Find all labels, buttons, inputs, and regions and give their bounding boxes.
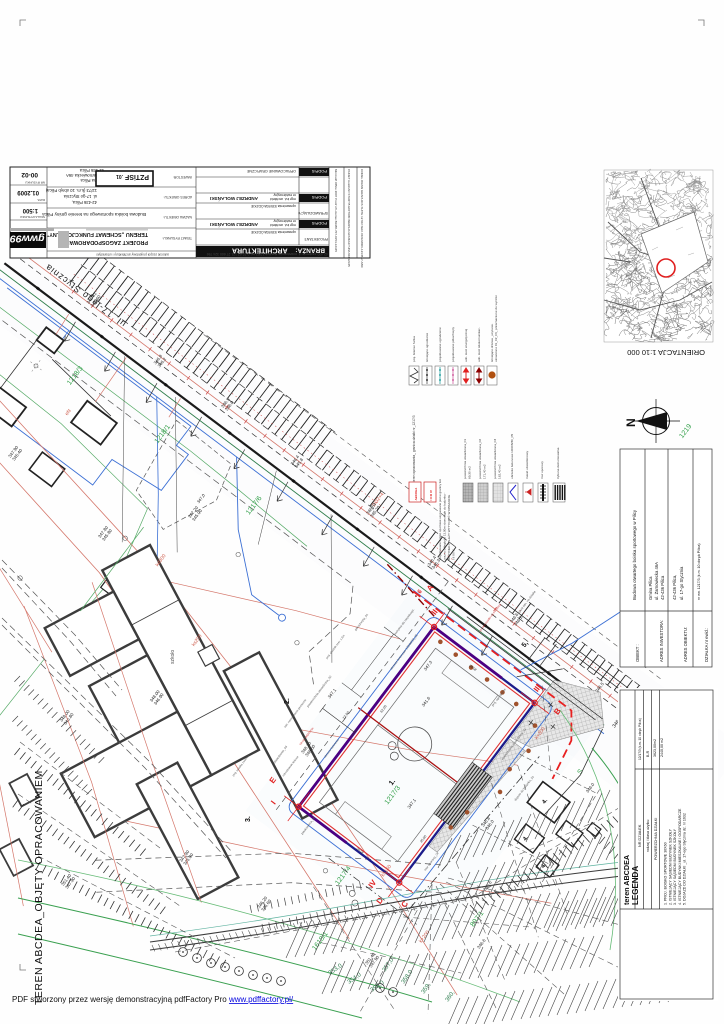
svg-text:PAKIET AutoCAD START/5 EDITION: PAKIET AutoCAD START/5 EDITION WERSJA ED…: [347, 169, 351, 267]
svg-text:PODPIS: PODPIS: [312, 195, 327, 200]
svg-text:powierzchnia utwardzona_03: powierzchnia utwardzona_03: [493, 439, 497, 479]
svg-text:01.2009: 01.2009: [17, 189, 39, 195]
svg-text:162,40 m2: 162,40 m2: [498, 464, 502, 479]
svg-text:powierzchnia utwardzona_01: powierzchnia utwardzona_01: [463, 439, 467, 479]
svg-text:PODPIS: PODPIS: [312, 221, 327, 226]
svg-text:1:500: 1:500: [22, 207, 38, 213]
svg-text:powierzchnia utwardzona_02: powierzchnia utwardzona_02: [478, 439, 482, 479]
svg-text:DZIAŁKA nr ewid.:: DZIAŁKA nr ewid.:: [704, 628, 709, 662]
svg-text:ABCDEA: ABCDEA: [414, 487, 418, 501]
svg-text:oraz w odległości 13,00m równo: oraz w odległości 13,00m równolegle do b…: [443, 493, 447, 560]
svg-text:LEGENDA: LEGENDA: [631, 866, 640, 905]
svg-text:42-400 zawiercie ul. powstań: 42-400 zawiercie ul. powstańców śląskich…: [207, 252, 328, 256]
svg-text:00-02: 00-02: [21, 171, 38, 178]
svg-text:maszt oświetleniowy: maszt oświetleniowy: [525, 450, 529, 479]
svg-text:szkoło: szkoło: [170, 650, 176, 664]
svg-text:odn. sieci telekomunikac.: odn. sieci telekomunikac.: [477, 327, 481, 362]
svg-text:2.: 2.: [284, 698, 291, 704]
svg-text:POWIERZCHNIA DZIAŁKI: POWIERZCHNIA DZIAŁKI: [654, 818, 658, 860]
svg-text:42-436 Pilica: 42-436 Pilica: [660, 575, 665, 600]
svg-text:12/17/3 (k.m. 10 obręb Pilica): 12/17/3 (k.m. 10 obręb Pilica): [638, 718, 642, 760]
svg-text:PODPIS: PODPIS: [312, 169, 327, 174]
svg-text:mur oporowy: mur oporowy: [540, 461, 544, 479]
svg-text:PDF stworzony przez wersję dem: PDF stworzony przez wersję demonstracyjn…: [12, 995, 294, 1004]
svg-text:SKALA RYSUNKU: SKALA RYSUNKU: [20, 215, 45, 219]
svg-text:N: N: [624, 418, 638, 427]
svg-text:BUDYNEK NALEŻY WYTYCZYĆ W OBSZ: BUDYNEK NALEŻY WYTYCZYĆ W OBSZARZE: [446, 495, 451, 560]
svg-text:COREL DRAW GRAPHICS SUITE 12 N: COREL DRAW GRAPHICS SUITE 12 NR SER. DR1…: [360, 169, 364, 269]
svg-text:2440,00 m2: 2440,00 m2: [660, 738, 664, 757]
svg-text:PROJEKT ZAGOSPODAROWANIA: PROJEKT ZAGOSPODAROWANIA: [60, 239, 148, 245]
svg-text:projektowane boisko sportowe u: projektowane boisko sportowe usytuowane …: [438, 479, 442, 560]
svg-text:Budowa boiska sportowego na te: Budowa boiska sportowego na terenie gmin…: [42, 212, 146, 217]
svg-text:NR DZIAŁEK: NR DZIAŁEK: [638, 824, 642, 847]
svg-text:ul. 17-go Stycznia: ul. 17-go Stycznia: [679, 566, 684, 600]
svg-text:3.: 3.: [245, 816, 252, 822]
svg-text:5. DOJAZD DO DZIAŁKI _ul. 17-: 5. DOJAZD DO DZIAŁKI _ul. 17-ego Styczni…: [683, 813, 687, 905]
svg-text:PZTiSF .01: PZTiSF .01: [116, 173, 149, 180]
svg-text:teren opracowania_ granica dzi: teren opracowania_ granica działki nr_12…: [412, 415, 416, 482]
svg-text:I II III IV: I II III IV: [429, 490, 433, 500]
svg-text:ul. 17-go Stycznia: ul. 17-go Stycznia: [63, 194, 97, 199]
svg-text:projektowane ogrodzenie: projektowane ogrodzenie: [438, 327, 442, 362]
svg-text:proj. brama i furtka: proj. brama i furtka: [412, 336, 416, 362]
svg-text:TEMAT RYSUNKU:: TEMAT RYSUNKU:: [162, 236, 192, 240]
svg-text:ul. Żarnowiecka 46A: ul. Żarnowiecka 46A: [654, 562, 659, 600]
svg-text:nr ew. 1217/3 (k.m. 10 obręb P: nr ew. 1217/3 (k.m. 10 obręb Pilica): [697, 543, 701, 600]
svg-text:uprawnienia 535/93/ŁÓDZKIE: uprawnienia 535/93/ŁÓDZKIE: [250, 204, 296, 209]
svg-text:istniejące ogrodzenie: istniejące ogrodzenie: [425, 333, 429, 362]
svg-text:ADRES OBIEKTU:: ADRES OBIEKTU:: [163, 195, 192, 199]
svg-text:uprawnienia 535/93/ŁÓDZKIE: uprawnienia 535/93/ŁÓDZKIE: [250, 230, 296, 235]
svg-text:3623,00m2: 3623,00m2: [653, 739, 657, 757]
svg-text:I II III IV: I II III IV: [452, 550, 456, 560]
svg-text:PROJEKTANT:: PROJEKTANT:: [304, 237, 328, 241]
svg-text:42-436 Pilica,: 42-436 Pilica,: [672, 575, 677, 600]
svg-text:DATA: DATA: [37, 198, 45, 202]
svg-text:ADRES OBIEKTU:: ADRES OBIEKTU:: [683, 627, 688, 662]
svg-text:NAZWA OBIEKTU:: NAZWA OBIEKTU:: [163, 215, 192, 219]
svg-text:ADRES INWESTORA:: ADRES INWESTORA:: [659, 620, 664, 662]
svg-text:TEREN ABCDEA_OBJĘTY OPRACOWANI: TEREN ABCDEA_OBJĘTY OPRACOWANIEM: [33, 770, 45, 1005]
svg-text:nr ewidencyjny: nr ewidencyjny: [273, 219, 296, 223]
svg-text:Gmina Pilica: Gmina Pilica: [648, 576, 653, 600]
svg-text:3. ISTNIEJĄCY SĄSIEDNI BUDYNE: 3. ISTNIEJĄCY SĄSIEDNI BUDYNEK SZKOŁY: [673, 828, 677, 905]
svg-text:ANDRZEJ WOLAŃSKI: ANDRZEJ WOLAŃSKI: [210, 222, 258, 229]
svg-text:NR RYSUNKU: NR RYSUNKU: [25, 181, 45, 185]
svg-text:1. PROJ. BOISKO SPORTOWE 30X6: 1. PROJ. BOISKO SPORTOWE 30X60: [664, 842, 668, 905]
svg-text:teren ABCDEA: teren ABCDEA: [622, 855, 631, 905]
svg-text:trybuna demontowalna: trybuna demontowalna: [556, 447, 560, 479]
svg-text:autorski zespół projektowy arc: autorski zespół projektowy architektury …: [96, 253, 169, 257]
svg-text:ANDRZEJ WOLAŃSKI: ANDRZEJ WOLAŃSKI: [210, 196, 258, 203]
svg-text:4. ISTNIEJĄCY BUDYNKI MIESZKA: 4. ISTNIEJĄCY BUDYNKI MIESZKALNE I GOSPO…: [678, 808, 682, 905]
svg-text:gww99: gww99: [10, 233, 46, 245]
svg-text:171,40 m2: 171,40 m2: [483, 464, 487, 479]
svg-text:ORIENTACJA 1:10 000: ORIENTACJA 1:10 000: [627, 348, 705, 357]
svg-text:odn. sieci energetycznej: odn. sieci energetycznej: [464, 328, 468, 362]
svg-text:SPRAWDZAJĄCY:: SPRAWDZAJĄCY:: [298, 211, 328, 215]
svg-text:nr ewidencyjny: nr ewidencyjny: [273, 193, 296, 197]
svg-text:obrzeże betonowe 100/08/30_05: obrzeże betonowe 100/08/30_05: [510, 434, 514, 479]
svg-text:projektowane piłkochwyty: projektowane piłkochwyty: [451, 326, 455, 362]
svg-text:69,30 m2: 69,30 m2: [468, 466, 472, 479]
svg-text:42-436 Pilica,: 42-436 Pilica,: [72, 200, 97, 205]
svg-text:oznaczone 01_02_03_ przeznaczo: oznaczone 01_02_03_ przeznaczone do wyci…: [494, 295, 498, 362]
svg-text:Microsoft Office 2007 Proof of: Microsoft Office 2007 Proof of License 8…: [334, 169, 338, 252]
svg-text:B-R: B-R: [646, 750, 650, 757]
svg-text:INWESTOR:: INWESTOR:: [173, 175, 192, 179]
svg-text:Budowa otwartego boiska sporto: Budowa otwartego boiska sportowego w Pil…: [632, 509, 637, 600]
svg-text:12/73 (k.m. 10 obręb Pilica): 12/73 (k.m. 10 obręb Pilica): [45, 188, 97, 193]
svg-text:rodzaj i klasa użytku: rodzaj i klasa użytku: [646, 820, 650, 852]
svg-text:OPRACOWANIE GRAFICZNE: OPRACOWANIE GRAFICZNE: [246, 169, 296, 173]
svg-text:2. ISTNIEJĄCY SĄSIEDNI BUDYNE: 2. ISTNIEJĄCY SĄSIEDNI BUDYNEK SZKOŁY: [668, 828, 672, 905]
svg-text:OBIEKT :: OBIEKT :: [635, 644, 640, 662]
